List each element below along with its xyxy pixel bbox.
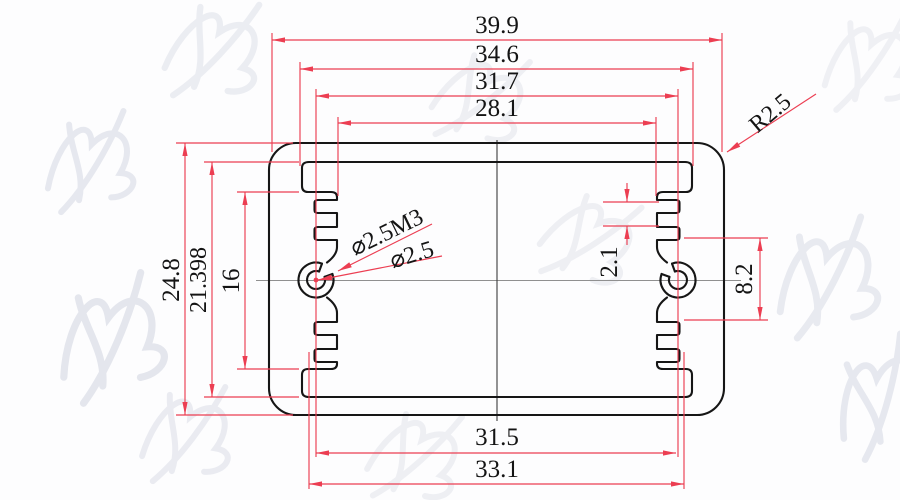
inner-wall-left-lower	[302, 298, 497, 398]
dim-text-overall-height: 24.8	[158, 258, 185, 302]
drawing-sheet: 39.9 34.6 31.7 28.1 24.8 21.398 16 2.1 8…	[0, 0, 900, 500]
watermark	[35, 5, 900, 500]
dim-text-boss-span-top: 31.7	[475, 68, 519, 95]
inner-wall-right-upper	[497, 162, 692, 263]
dim-text-groove-gap: 2.1	[596, 246, 623, 277]
dim-text-face-span: 28.1	[475, 95, 519, 122]
dim-text-slot-height: 16	[218, 269, 245, 294]
technical-drawing-canvas: 39.9 34.6 31.7 28.1 24.8 21.398 16 2.1 8…	[0, 0, 900, 500]
dim-text-inner-height: 21.398	[186, 247, 212, 313]
boss-center-mark	[314, 278, 319, 283]
dim-text-overall-width: 39.9	[475, 12, 519, 39]
extension-lines	[176, 33, 768, 489]
dim-text-boss-span-bottom: 31.5	[475, 424, 519, 451]
callout-text-corner-radius: R2.5	[745, 89, 797, 138]
dim-text-bottom-width: 33.1	[475, 456, 519, 483]
dim-text-inner-width: 34.6	[475, 41, 519, 68]
inner-wall-right-lower	[497, 298, 692, 398]
dim-text-card-gap: 8.2	[731, 263, 758, 294]
